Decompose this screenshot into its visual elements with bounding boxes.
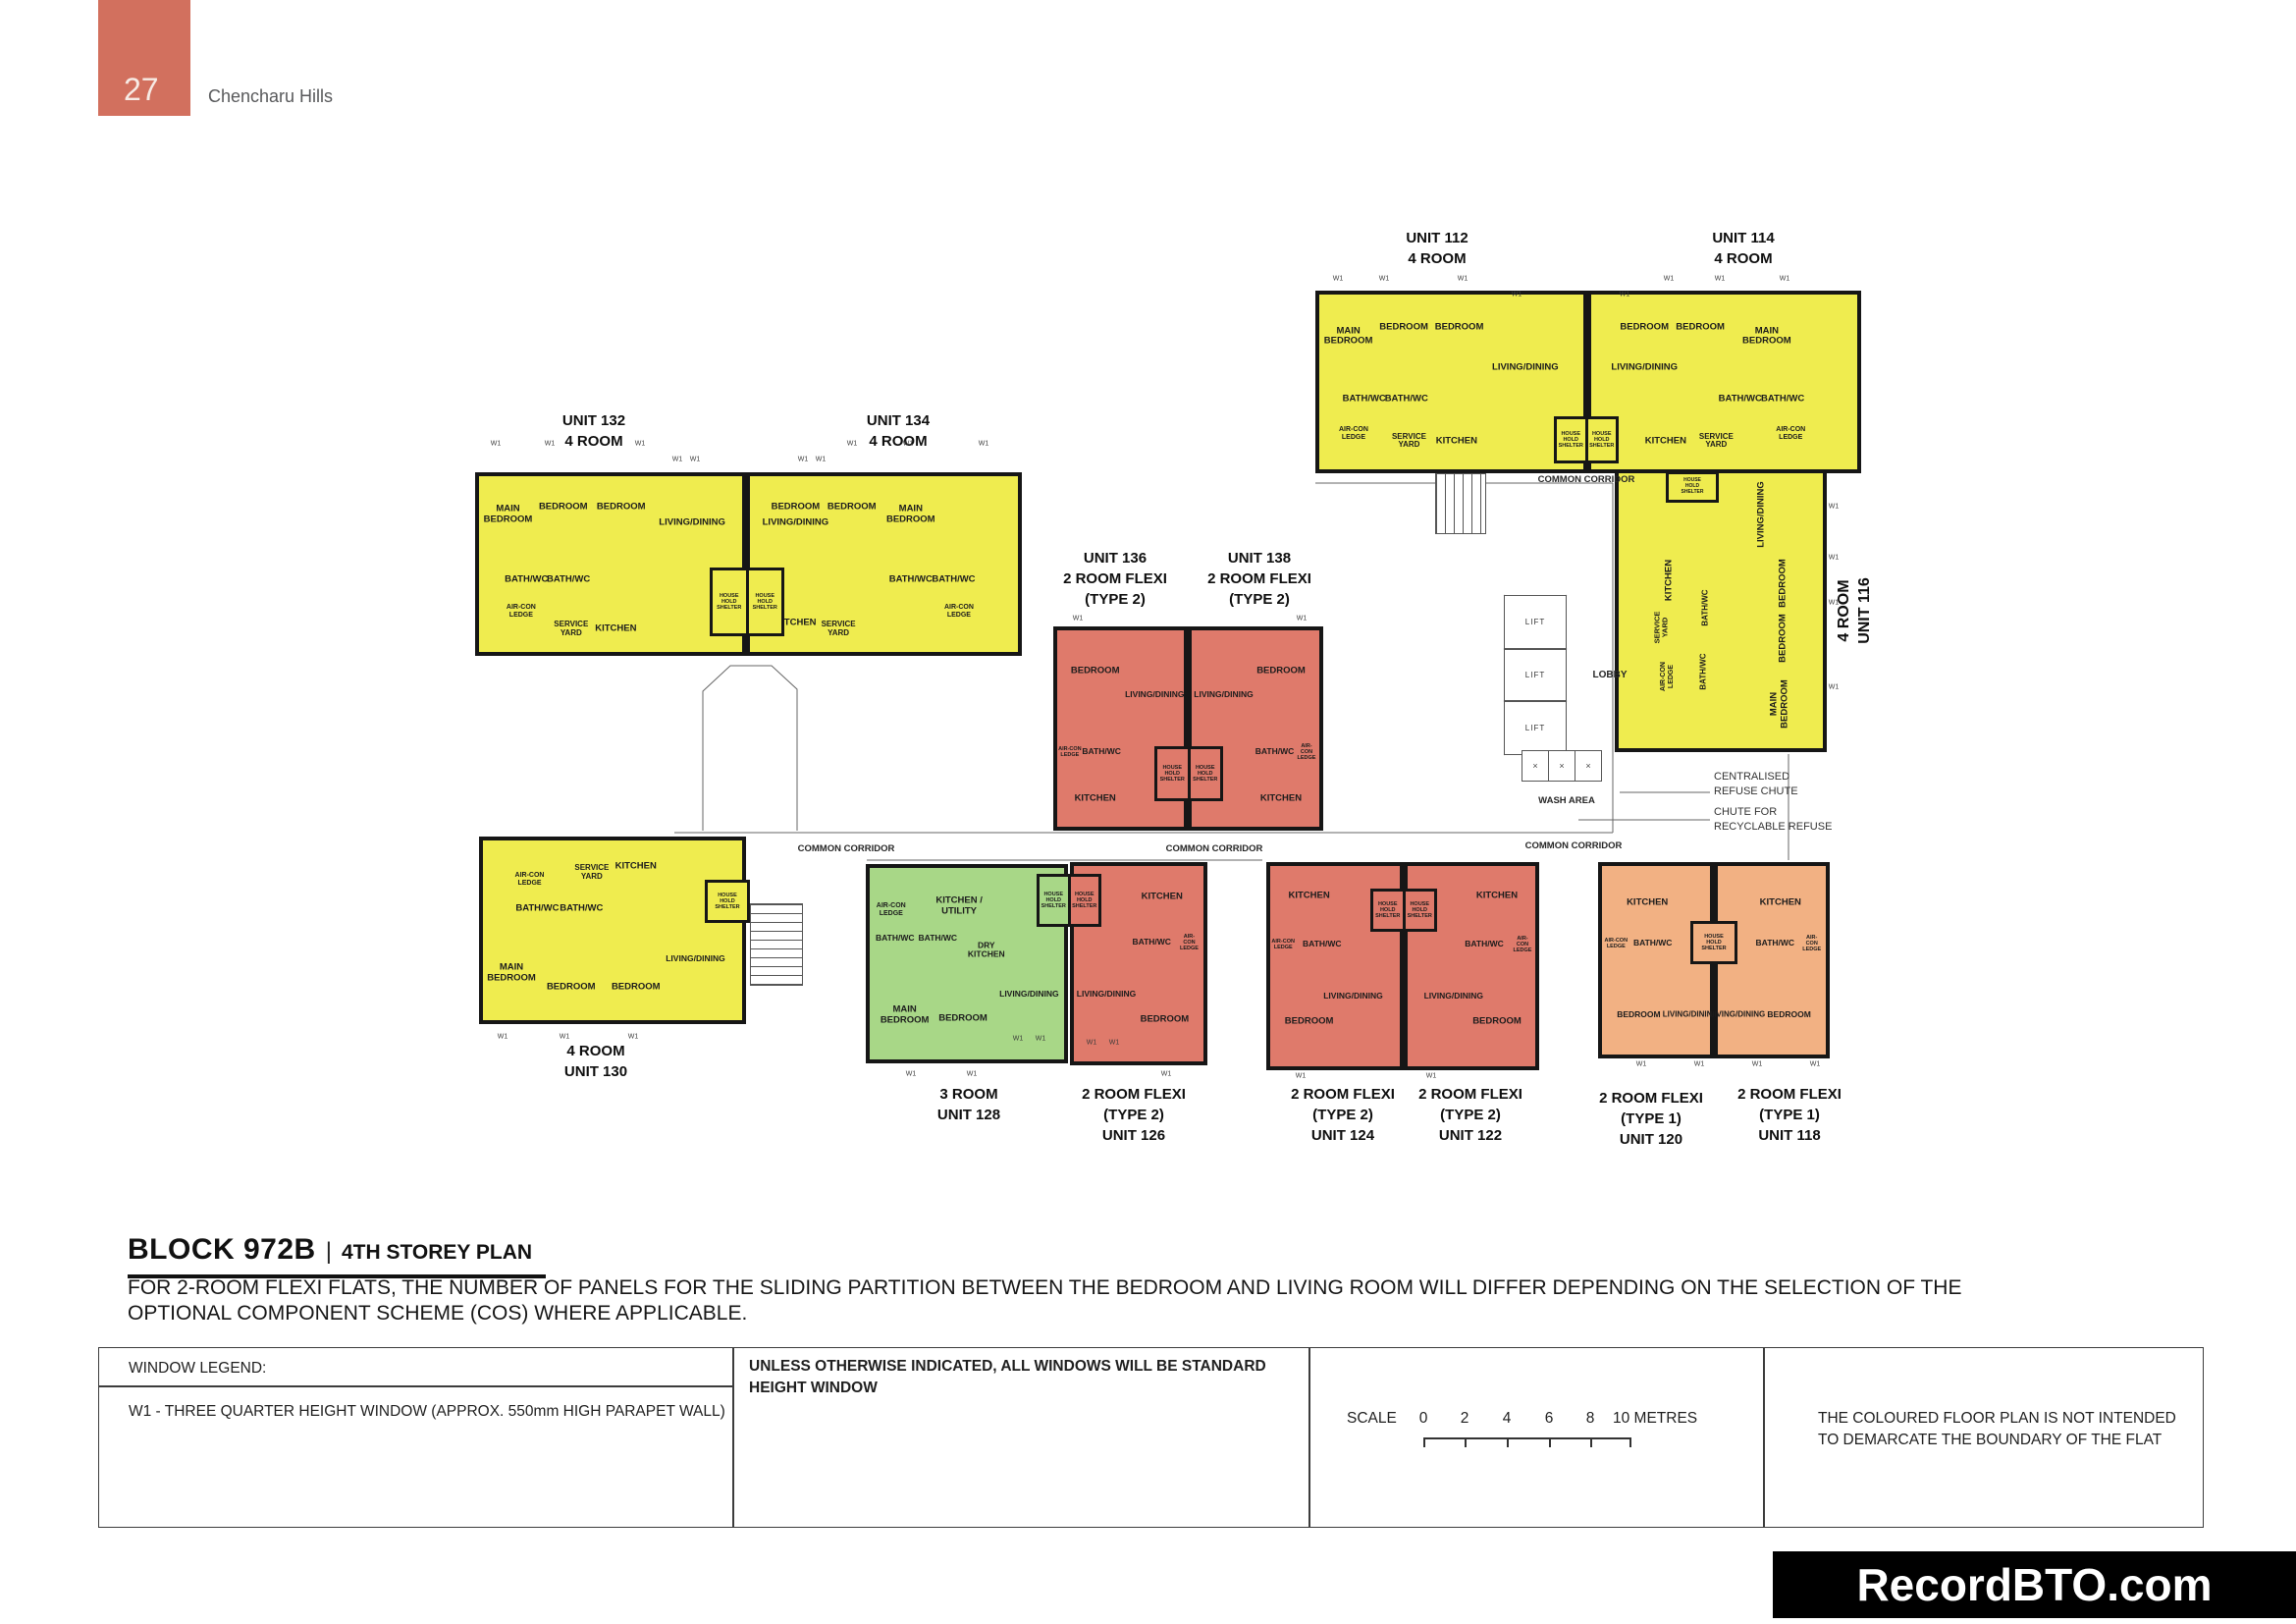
- wash-area-box: ×××: [1522, 750, 1602, 782]
- room-label-household-shelter: HOUSE HOLD SHELTER: [1693, 924, 1735, 961]
- storey-title: 4TH STOREY PLAN: [342, 1241, 532, 1264]
- project-title: Chencharu Hills: [208, 86, 333, 107]
- window-mark-w1: W1: [1087, 1040, 1097, 1047]
- room-label-bedroom: BEDROOM: [1141, 1015, 1190, 1026]
- scale-tick-2: 2: [1461, 1410, 1469, 1428]
- room-label-living-dining: LIVING/DINING: [1492, 362, 1559, 373]
- scale-tick-4: 4: [1503, 1410, 1512, 1428]
- window-mark-w1: W1: [798, 457, 809, 463]
- room-label-bath-wc: BATH/WC: [1719, 394, 1762, 405]
- unit-130-caption: 4 ROOMUNIT 130: [564, 1041, 627, 1082]
- room-label-bath-wc: BATH/WC: [1702, 590, 1711, 626]
- watermark: RecordBTO.com: [1773, 1551, 2296, 1618]
- room-label-bedroom: BEDROOM: [1379, 323, 1428, 334]
- household-shelter-box: HOUSE HOLD SHELTERHOUSE HOLD SHELTER: [1154, 746, 1223, 801]
- room-label-bath-wc: BATH/WC: [1756, 939, 1795, 948]
- scale-label: SCALE: [1347, 1410, 1397, 1428]
- unit-122-caption: 2 ROOM FLEXI(TYPE 2)UNIT 122: [1418, 1084, 1522, 1146]
- room-label-household-shelter: HOUSE HOLD SHELTER: [1068, 877, 1099, 924]
- room-label-kitchen: KITCHEN: [615, 862, 657, 873]
- window-mark-w1: W1: [1715, 276, 1726, 283]
- room-label-main-bedroom: MAIN BEDROOM: [487, 963, 536, 984]
- room-label-service-yard: SERVICE YARD: [822, 621, 856, 638]
- room-label-aircon-ledge: AIR-CON LEDGE: [1776, 427, 1805, 443]
- scale-tick-8: 8: [1586, 1410, 1595, 1428]
- room-label-service-yard: SERVICE YARD: [574, 864, 609, 882]
- room-label-kitchen: KITCHEN: [1645, 436, 1686, 447]
- room-label-main-bedroom: MAIN BEDROOM: [1770, 679, 1790, 729]
- window-mark-w1: W1: [1458, 276, 1468, 283]
- household-shelter-box: HOUSE HOLD SHELTERHOUSE HOLD SHELTER: [710, 568, 784, 636]
- household-shelter-box: HOUSE HOLD SHELTERHOUSE HOLD SHELTER: [1037, 874, 1101, 927]
- room-label-kitchen: KITCHEN: [1665, 560, 1676, 601]
- wash-point: ×: [1522, 751, 1548, 781]
- window-mark-w1: W1: [1296, 1073, 1307, 1080]
- window-mark-w1: W1: [545, 441, 556, 448]
- common-corridor-label: COMMON CORRIDOR: [1525, 840, 1623, 851]
- room-label-bedroom: BEDROOM: [1435, 323, 1484, 334]
- window-mark-w1: W1: [816, 457, 827, 463]
- room-label-main-bedroom: MAIN BEDROOM: [1742, 326, 1791, 347]
- window-mark-w1: W1: [690, 457, 701, 463]
- room-label-household-shelter: HOUSE HOLD SHELTER: [746, 570, 782, 633]
- window-mark-w1: W1: [1512, 292, 1522, 298]
- household-shelter-box: HOUSE HOLD SHELTER: [1666, 471, 1719, 503]
- room-label-aircon-ledge: AIR-CON LEDGE: [1605, 938, 1629, 949]
- household-shelter-box: HOUSE HOLD SHELTERHOUSE HOLD SHELTER: [1370, 889, 1437, 932]
- room-label-bath-wc: BATH/WC: [889, 574, 933, 585]
- room-label-bath-wc: BATH/WC: [1132, 938, 1171, 947]
- room-label-bedroom: BEDROOM: [1617, 1010, 1660, 1020]
- disclaimer-line-2: TO DEMARCATE THE BOUNDARY OF THE FLAT: [1818, 1432, 2162, 1449]
- window-mark-w1: W1: [1161, 1071, 1172, 1078]
- window-mark-w1: W1: [491, 441, 502, 448]
- window-mark-w1: W1: [1829, 600, 1840, 607]
- room-label-aircon-ledge: AIR-CON LEDGE: [944, 604, 974, 620]
- page-canvas: 27 Chencharu Hills MAIN BEDROOM BEDROOM …: [0, 0, 2296, 1624]
- room-label-aircon-ledge: AIR-CON LEDGE: [1660, 662, 1676, 691]
- room-label-bath-wc: BATH/WC: [1303, 940, 1342, 949]
- disclaimer-line-1: THE COLOURED FLOOR PLAN IS NOT INTENDED: [1818, 1410, 2176, 1428]
- room-label-kitchen: KITCHEN: [1142, 893, 1183, 903]
- room-label-bath-wc: BATH/WC: [1465, 940, 1504, 949]
- room-label-bath-wc: BATH/WC: [932, 574, 975, 585]
- room-label-kitchen: KITCHEN: [595, 623, 636, 634]
- room-label-bedroom: BEDROOM: [1676, 323, 1725, 334]
- lift-1: LIFT: [1504, 595, 1567, 649]
- room-label-kitchen: KITCHEN: [1260, 794, 1302, 805]
- scale-bar-tick: [1629, 1437, 1631, 1447]
- unit-132-caption: UNIT 1324 ROOM: [562, 410, 625, 452]
- window-mark-w1: W1: [1333, 276, 1344, 283]
- room-label-household-shelter: HOUSE HOLD SHELTER: [1585, 419, 1617, 460]
- table-divider: [99, 1385, 732, 1387]
- room-label-bedroom: BEDROOM: [1620, 323, 1669, 334]
- recyclable-refuse-chute-label: CHUTE FOR RECYCLABLE REFUSE: [1714, 805, 1832, 835]
- scale-tick-0: 0: [1419, 1410, 1428, 1428]
- room-label-bedroom: BEDROOM: [1779, 559, 1789, 608]
- unit-138-caption: UNIT 1382 ROOM FLEXI(TYPE 2): [1207, 548, 1311, 610]
- room-label-living-dining: LIVING/DINING: [1125, 690, 1184, 700]
- window-mark-w1: W1: [635, 441, 646, 448]
- cos-note-line-1: FOR 2-ROOM FLEXI FLATS, THE NUMBER OF PA…: [128, 1276, 1961, 1300]
- room-label-aircon-ledge: AIR-CON LEDGE: [877, 902, 906, 918]
- room-label-living-dining: LIVING/DINING: [1323, 992, 1382, 1001]
- room-label-bedroom: BEDROOM: [772, 503, 821, 514]
- household-shelter-box: HOUSE HOLD SHELTER: [705, 880, 750, 923]
- window-mark-w1: W1: [1620, 292, 1630, 298]
- room-label-household-shelter: HOUSE HOLD SHELTER: [1188, 749, 1221, 798]
- room-label-bath-wc: BATH/WC: [547, 574, 590, 585]
- block-title: BLOCK 972B: [128, 1233, 316, 1266]
- window-mark-w1: W1: [1109, 1040, 1120, 1047]
- window-mark-w1: W1: [1829, 555, 1840, 562]
- room-label-aircon-ledge: AIR-CON LEDGE: [507, 604, 536, 620]
- room-label-service-yard: SERVICE YARD: [554, 621, 588, 638]
- watermark-text: RecordBTO.com: [1856, 1558, 2212, 1611]
- room-label-living-dining: LIVING/DINING: [1709, 1010, 1765, 1019]
- window-mark-w1: W1: [1694, 1061, 1705, 1068]
- room-label-bath-wc: BATH/WC: [1761, 394, 1804, 405]
- window-mark-w1: W1: [1829, 684, 1840, 691]
- room-label-aircon-ledge: AIR-CON LEDGE: [1298, 743, 1316, 761]
- unit-116-caption: 4 ROOMUNIT 116: [1834, 577, 1875, 644]
- room-label-living-dining: LIVING/DINING: [1194, 690, 1253, 700]
- room-label-main-bedroom: MAIN BEDROOM: [484, 505, 533, 525]
- unit-124-caption: 2 ROOM FLEXI(TYPE 2)UNIT 124: [1291, 1084, 1395, 1146]
- window-mark-w1: W1: [1013, 1036, 1024, 1043]
- table-divider: [732, 1348, 734, 1527]
- window-mark-w1: W1: [1297, 616, 1308, 623]
- page-number-badge: 27: [98, 0, 190, 116]
- room-label-bath-wc: BATH/WC: [1082, 747, 1121, 757]
- room-label-kitchen: KITCHEN: [1436, 436, 1477, 447]
- room-label-living-dining: LIVING/DINING: [659, 518, 725, 529]
- room-label-bedroom: BEDROOM: [1285, 1017, 1334, 1028]
- scale-bar-tick: [1549, 1437, 1551, 1447]
- room-label-bedroom: BEDROOM: [612, 983, 661, 994]
- room-label-aircon-ledge: AIR-CON LEDGE: [1514, 935, 1532, 952]
- unit-118-caption: 2 ROOM FLEXI(TYPE 1)UNIT 118: [1737, 1084, 1842, 1146]
- window-mark-w1: W1: [1036, 1036, 1046, 1043]
- unit-126-caption: 2 ROOM FLEXI(TYPE 2)UNIT 126: [1082, 1084, 1186, 1146]
- room-label-service-yard: SERVICE YARD: [1699, 433, 1734, 451]
- room-label-household-shelter: HOUSE HOLD SHELTER: [1040, 877, 1068, 924]
- unit-132-plan: MAIN BEDROOM BEDROOM BEDROOM LIVING/DINI…: [475, 472, 746, 656]
- room-label-bedroom: BEDROOM: [1472, 1017, 1522, 1028]
- room-label-living-dining: LIVING/DINING: [1424, 992, 1483, 1001]
- room-label-aircon-ledge: AIR-CON LEDGE: [1802, 934, 1821, 951]
- room-label-kitchen: KITCHEN: [1627, 898, 1668, 909]
- window-mark-w1: W1: [1752, 1061, 1763, 1068]
- room-label-main-bedroom: MAIN BEDROOM: [886, 505, 935, 525]
- room-label-bedroom: BEDROOM: [938, 1014, 988, 1025]
- room-label-bath-wc: BATH/WC: [919, 934, 958, 944]
- household-shelter-box: HOUSE HOLD SHELTERHOUSE HOLD SHELTER: [1554, 416, 1619, 463]
- room-label-bath-wc: BATH/WC: [1700, 653, 1709, 689]
- room-label-bedroom: BEDROOM: [1256, 667, 1306, 677]
- window-mark-w1: W1: [672, 457, 683, 463]
- centralised-refuse-chute-label: CENTRALISED REFUSE CHUTE: [1714, 770, 1798, 799]
- window-mark-w1: W1: [1073, 616, 1084, 623]
- window-legend-w1: W1 - THREE QUARTER HEIGHT WINDOW (APPROX…: [129, 1403, 725, 1421]
- unit-116-plan: LIVING/DINING KITCHEN SERVICE YARD BATH/…: [1615, 469, 1827, 752]
- scale-bar-tick: [1507, 1437, 1509, 1447]
- cos-note-line-2: OPTIONAL COMPONENT SCHEME (COS) WHERE AP…: [128, 1302, 747, 1326]
- table-divider: [1308, 1348, 1310, 1527]
- room-label-household-shelter: HOUSE HOLD SHELTER: [1557, 419, 1585, 460]
- room-label-service-yard: SERVICE YARD: [1653, 611, 1670, 643]
- room-label-kitchen: KITCHEN: [1075, 794, 1116, 805]
- room-label-bedroom: BEDROOM: [828, 503, 877, 514]
- staircase: [1435, 473, 1486, 534]
- room-label-aircon-ledge: AIR-CON LEDGE: [515, 872, 545, 888]
- room-label-bath-wc: BATH/WC: [515, 903, 559, 914]
- room-label-living-dining: LIVING/DINING: [763, 518, 829, 529]
- window-mark-w1: W1: [1829, 504, 1840, 511]
- lift-3: LIFT: [1504, 701, 1567, 755]
- room-label-aircon-ledge: AIR-CON LEDGE: [1271, 938, 1295, 949]
- room-label-bath-wc: BATH/WC: [1255, 747, 1295, 757]
- unit-112-plan: MAIN BEDROOM BEDROOM BEDROOM LIVING/DINI…: [1315, 291, 1587, 473]
- room-label-aircon-ledge: AIR-CON LEDGE: [1339, 427, 1368, 443]
- title-separator: |: [326, 1238, 332, 1265]
- scale-unit-label: 10 METRES: [1613, 1410, 1697, 1428]
- room-label-living-dining: LIVING/DINING: [1611, 362, 1678, 373]
- room-label-dry-kitchen: DRY KITCHEN: [968, 941, 1005, 959]
- window-mark-w1: W1: [1780, 276, 1790, 283]
- staircase: [750, 903, 803, 986]
- room-label-kitchen: KITCHEN: [1760, 898, 1801, 909]
- wash-point: ×: [1575, 751, 1601, 781]
- common-corridor-label: COMMON CORRIDOR: [1538, 474, 1635, 485]
- unit-128-caption: 3 ROOMUNIT 128: [937, 1084, 1000, 1125]
- unit-134-caption: UNIT 1344 ROOM: [867, 410, 930, 452]
- room-label-kitchen-utility: KITCHEN / UTILITY: [935, 895, 983, 916]
- room-label-living-dining: LIVING/DINING: [1077, 991, 1136, 1001]
- room-label-main-bedroom: MAIN BEDROOM: [1324, 326, 1373, 347]
- wash-area-label: WASH AREA: [1538, 795, 1595, 806]
- window-mark-w1: W1: [498, 1034, 508, 1041]
- common-corridor-label: COMMON CORRIDOR: [798, 843, 895, 854]
- room-label-bath-wc: BATH/WC: [876, 934, 915, 944]
- room-label-living-dining: LIVING/DINING: [666, 954, 724, 964]
- window-legend-title: WINDOW LEGEND:: [129, 1360, 266, 1378]
- room-label-living-dining: LIVING/DINING: [999, 990, 1058, 1000]
- window-mark-w1: W1: [906, 1071, 917, 1078]
- scale-bar: [1423, 1437, 1631, 1439]
- window-mark-w1: W1: [1636, 1061, 1647, 1068]
- window-mark-w1: W1: [967, 1071, 978, 1078]
- scale-bar-tick: [1590, 1437, 1592, 1447]
- window-mark-w1: W1: [628, 1034, 639, 1041]
- room-label-bedroom: BEDROOM: [597, 503, 646, 514]
- room-label-household-shelter: HOUSE HOLD SHELTER: [1157, 749, 1188, 798]
- scale-bar-tick: [1423, 1437, 1425, 1447]
- room-label-service-yard: SERVICE YARD: [1392, 433, 1426, 451]
- room-label-bedroom: BEDROOM: [1071, 667, 1120, 677]
- windows-note-line-2: HEIGHT WINDOW: [749, 1380, 878, 1397]
- window-mark-w1: W1: [847, 441, 858, 448]
- room-label-household-shelter: HOUSE HOLD SHELTER: [1373, 892, 1403, 929]
- unit-114-plan: BEDROOM BEDROOM MAIN BEDROOM LIVING/DINI…: [1587, 291, 1861, 473]
- scale-tick-6: 6: [1545, 1410, 1554, 1428]
- windows-note-line-1: UNLESS OTHERWISE INDICATED, ALL WINDOWS …: [749, 1358, 1266, 1376]
- window-mark-w1: W1: [1379, 276, 1390, 283]
- room-label-kitchen: KITCHEN: [1288, 891, 1329, 901]
- unit-134-plan: BEDROOM BEDROOM MAIN BEDROOM LIVING/DINI…: [746, 472, 1022, 656]
- window-mark-w1: W1: [1664, 276, 1675, 283]
- unit-112-caption: UNIT 1124 ROOM: [1406, 228, 1468, 269]
- unit-114-caption: UNIT 1144 ROOM: [1712, 228, 1774, 269]
- window-mark-w1: W1: [1810, 1061, 1821, 1068]
- room-label-aircon-ledge: AIR-CON LEDGE: [1180, 933, 1199, 950]
- room-label-household-shelter: HOUSE HOLD SHELTER: [1669, 474, 1716, 500]
- room-label-bath-wc: BATH/WC: [505, 574, 548, 585]
- common-corridor-label: COMMON CORRIDOR: [1166, 843, 1263, 854]
- lobby-label: LOBBY: [1593, 670, 1628, 680]
- room-label-bedroom: BEDROOM: [1779, 614, 1789, 663]
- room-label-household-shelter: HOUSE HOLD SHELTER: [713, 570, 746, 633]
- room-label-bath-wc: BATH/WC: [560, 903, 603, 914]
- room-label-household-shelter: HOUSE HOLD SHELTER: [1403, 892, 1435, 929]
- room-label-living-dining: LIVING/DINING: [1756, 481, 1767, 548]
- window-mark-w1: W1: [979, 441, 989, 448]
- page-title: BLOCK 972B|4TH STOREY PLAN: [128, 1233, 546, 1278]
- room-label-kitchen: KITCHEN: [1476, 891, 1518, 901]
- room-label-bedroom: BEDROOM: [547, 983, 596, 994]
- room-label-bedroom: BEDROOM: [1767, 1010, 1810, 1020]
- household-shelter-box: HOUSE HOLD SHELTER: [1690, 921, 1737, 964]
- scale-bar-tick: [1465, 1437, 1467, 1447]
- window-mark-w1: W1: [903, 441, 914, 448]
- room-label-bath-wc: BATH/WC: [1633, 939, 1673, 948]
- unit-136-caption: UNIT 1362 ROOM FLEXI(TYPE 2): [1063, 548, 1167, 610]
- window-mark-w1: W1: [1426, 1073, 1437, 1080]
- wash-point: ×: [1548, 751, 1575, 781]
- lift-2: LIFT: [1504, 649, 1567, 701]
- room-label-main-bedroom: MAIN BEDROOM: [881, 1005, 930, 1026]
- unit-120-caption: 2 ROOM FLEXI(TYPE 1)UNIT 120: [1599, 1088, 1703, 1150]
- page-number: 27: [124, 72, 159, 108]
- room-label-bath-wc: BATH/WC: [1385, 394, 1428, 405]
- room-label-household-shelter: HOUSE HOLD SHELTER: [708, 883, 747, 920]
- window-mark-w1: W1: [560, 1034, 570, 1041]
- unit-130-plan: KITCHEN SERVICE YARD AIR-CON LEDGE BATH/…: [479, 837, 746, 1024]
- room-label-bedroom: BEDROOM: [539, 503, 588, 514]
- room-label-bath-wc: BATH/WC: [1343, 394, 1386, 405]
- table-divider: [1763, 1348, 1765, 1527]
- room-label-aircon-ledge: AIR-CON LEDGE: [1058, 746, 1082, 758]
